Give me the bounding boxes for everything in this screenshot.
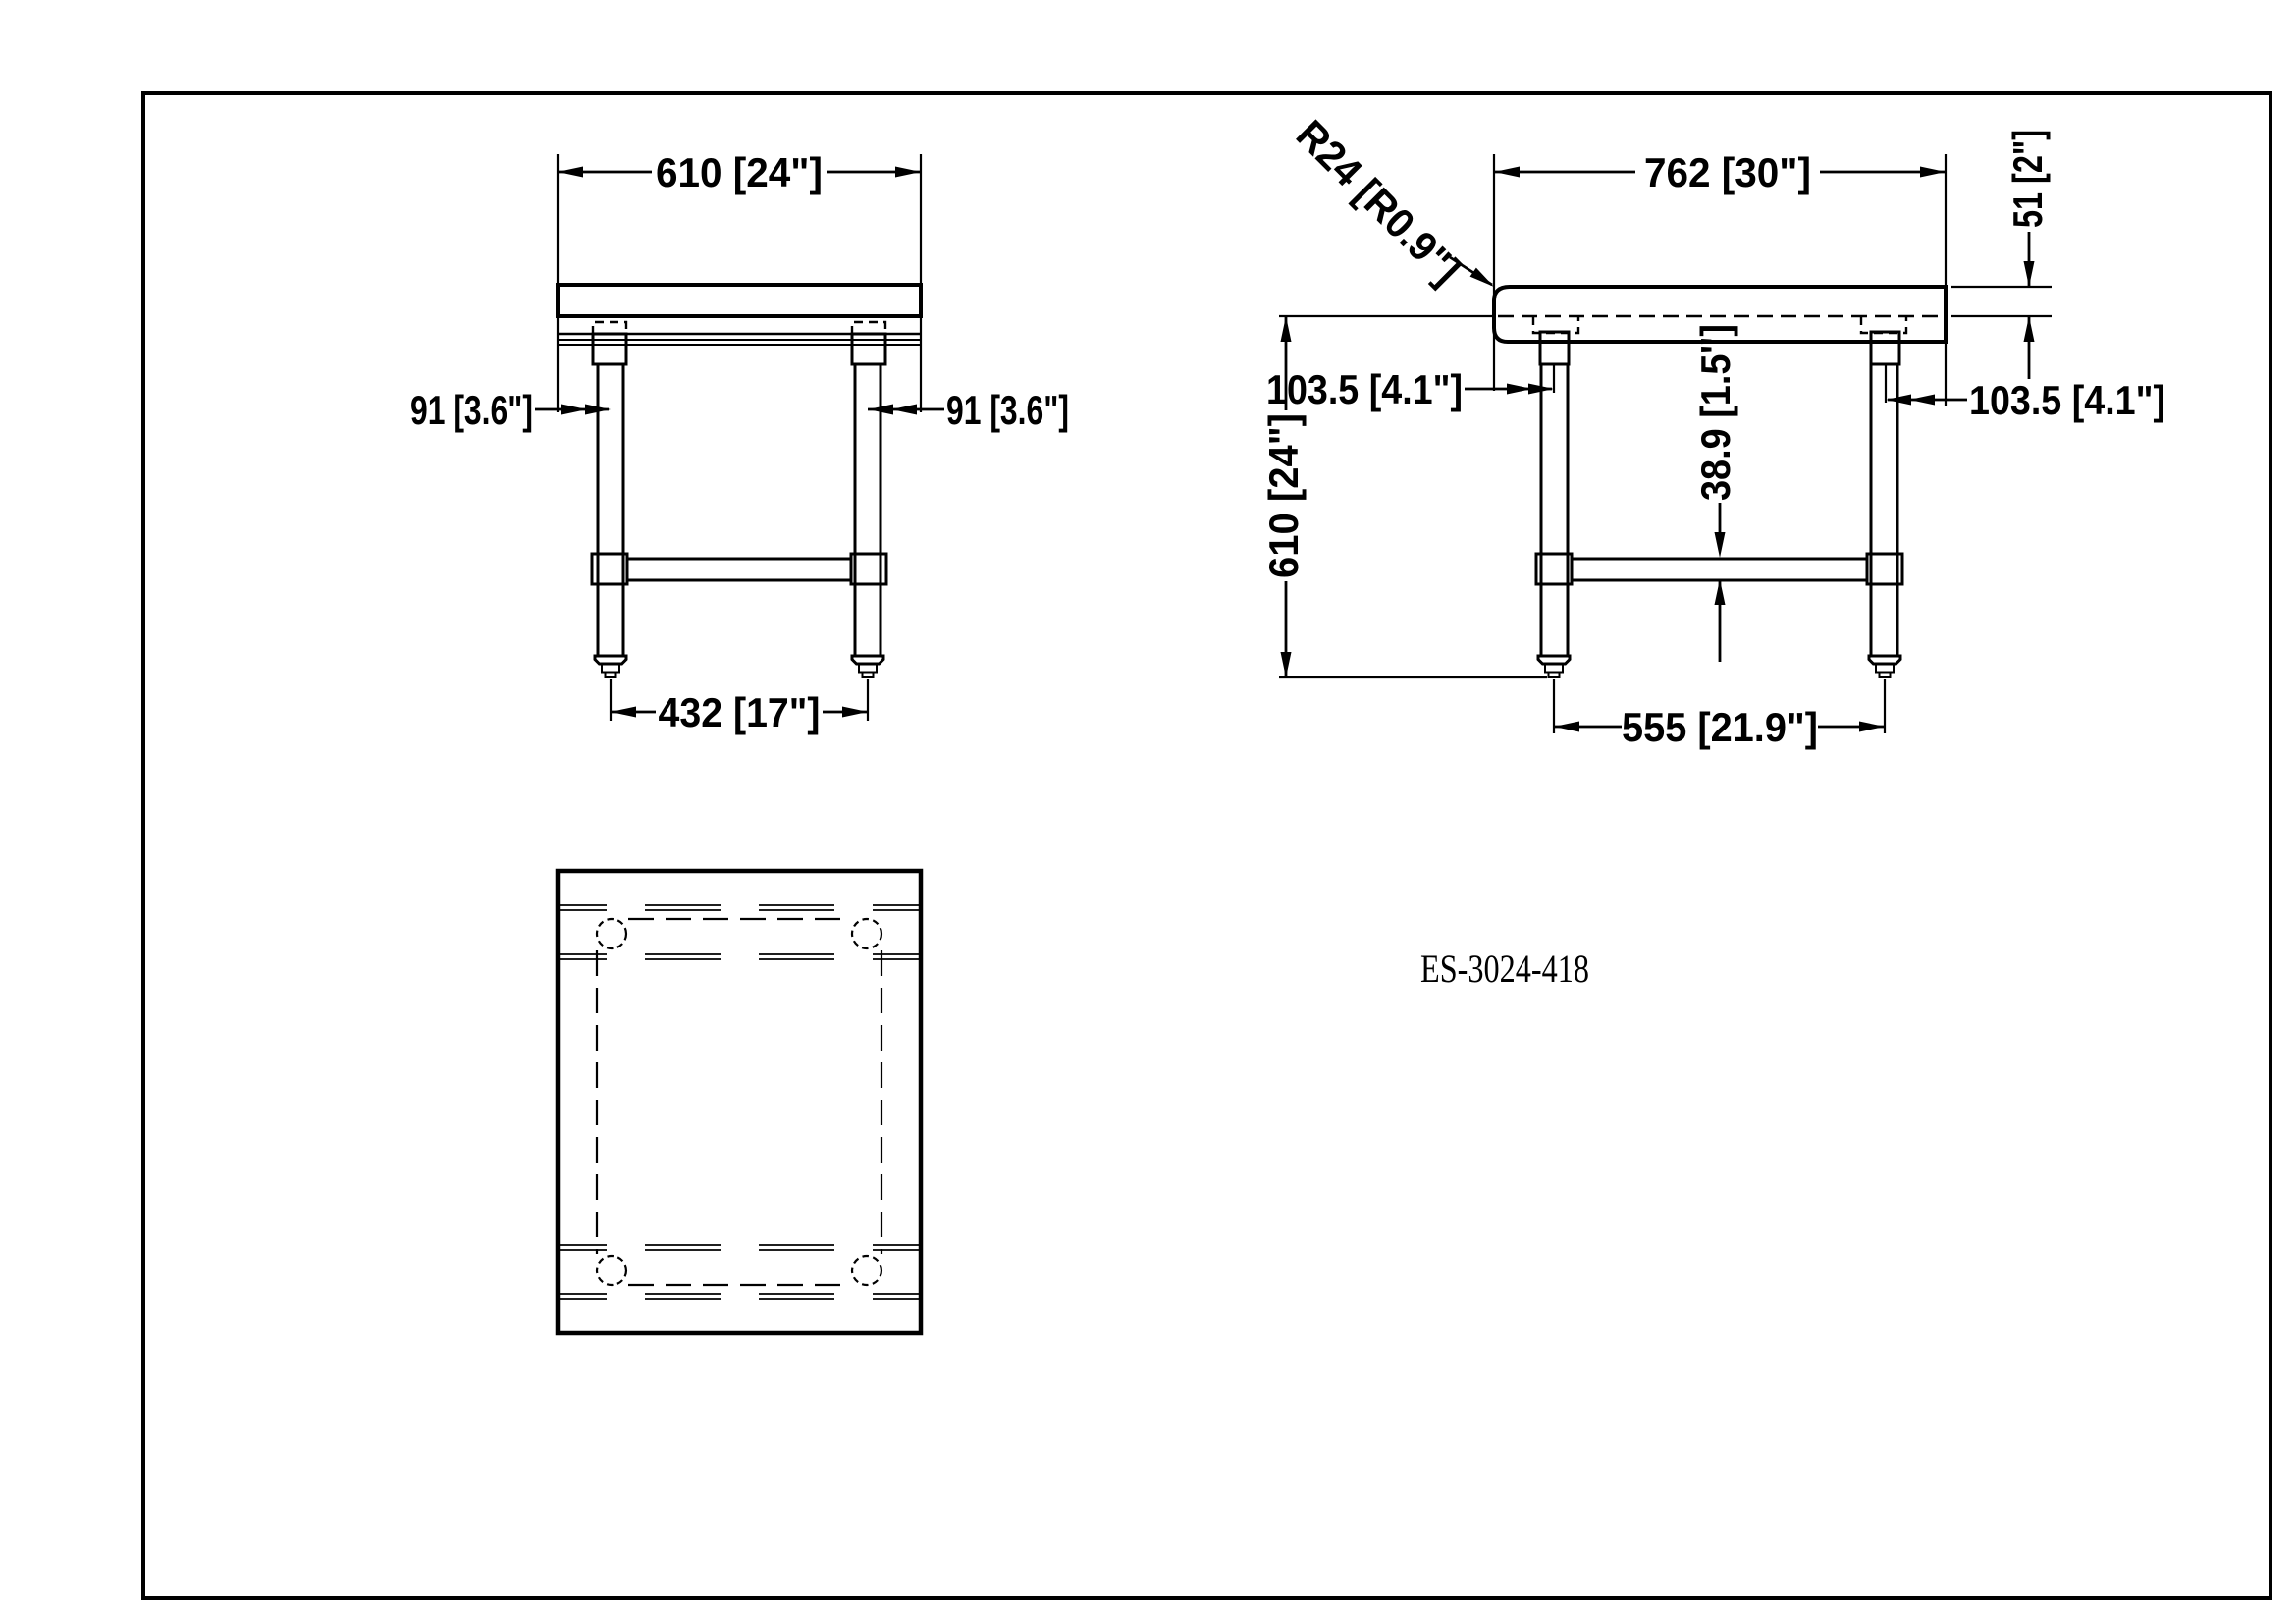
- dim-side-feet-span-label: 555 [21.9"]: [1622, 704, 1818, 750]
- plan-view: [558, 871, 921, 1333]
- dim-side-top-depth-label: 762 [30"]: [1644, 149, 1811, 195]
- dim-side-leg-inset-left-label: 103.5 [4.1"]: [1266, 366, 1463, 412]
- side-leg-left: [1541, 364, 1568, 656]
- plan-leg-circles: [597, 919, 881, 1285]
- drawing-sheet: 610 [24"] 91 [3.6"] 91 [3.6"] 432 [17"]: [0, 0, 2296, 1623]
- dim-side-corner-radius-label: R24 [R0.9"]: [1288, 111, 1469, 293]
- front-extension-lines: [558, 154, 921, 721]
- plan-tabletop-outline: [558, 871, 921, 1333]
- dim-side-brace-height-label: 38.9 [1.5"]: [1692, 324, 1738, 501]
- dim-front-leg-offset-left-label: 91 [3.6"]: [410, 387, 533, 433]
- dim-front-top-width-label: 610 [24"]: [656, 149, 823, 195]
- dim-side-top-thickness-label: 51 [2"]: [2004, 130, 2051, 228]
- plan-channel-lines: [558, 905, 921, 1299]
- technical-drawing: 610 [24"] 91 [3.6"] 91 [3.6"] 432 [17"]: [0, 0, 2296, 1623]
- side-leg-right: [1871, 364, 1897, 656]
- model-number: ES-3024-418: [1420, 947, 1589, 991]
- side-dimension-lines: [1286, 172, 2029, 727]
- front-tabletop: [558, 285, 921, 316]
- side-undershelf-brace: [1536, 554, 1902, 584]
- dim-side-leg-inset-right-label: 103.5 [4.1"]: [1969, 377, 2165, 423]
- side-dimension-arrowheads: [1281, 167, 2035, 732]
- side-view: 762 [30"] R24 [R0.9"] 51 [2"] 103.5 [4.1…: [1260, 111, 2165, 750]
- sheet-border: [143, 93, 2270, 1598]
- dim-front-leg-offset-right-label: 91 [3.6"]: [946, 387, 1069, 433]
- front-channel-lines: [558, 334, 921, 345]
- front-undershelf-brace: [592, 554, 886, 584]
- dim-front-feet-span-label: 432 [17"]: [659, 689, 821, 735]
- dim-side-height-label: 610 [24"]: [1260, 413, 1307, 578]
- front-feet: [595, 656, 883, 677]
- front-view: 610 [24"] 91 [3.6"] 91 [3.6"] 432 [17"]: [410, 149, 1069, 735]
- front-leg-gussets: [593, 322, 885, 364]
- plan-hidden-frame: [597, 919, 881, 1285]
- front-dimension-arrowheads: [558, 167, 921, 718]
